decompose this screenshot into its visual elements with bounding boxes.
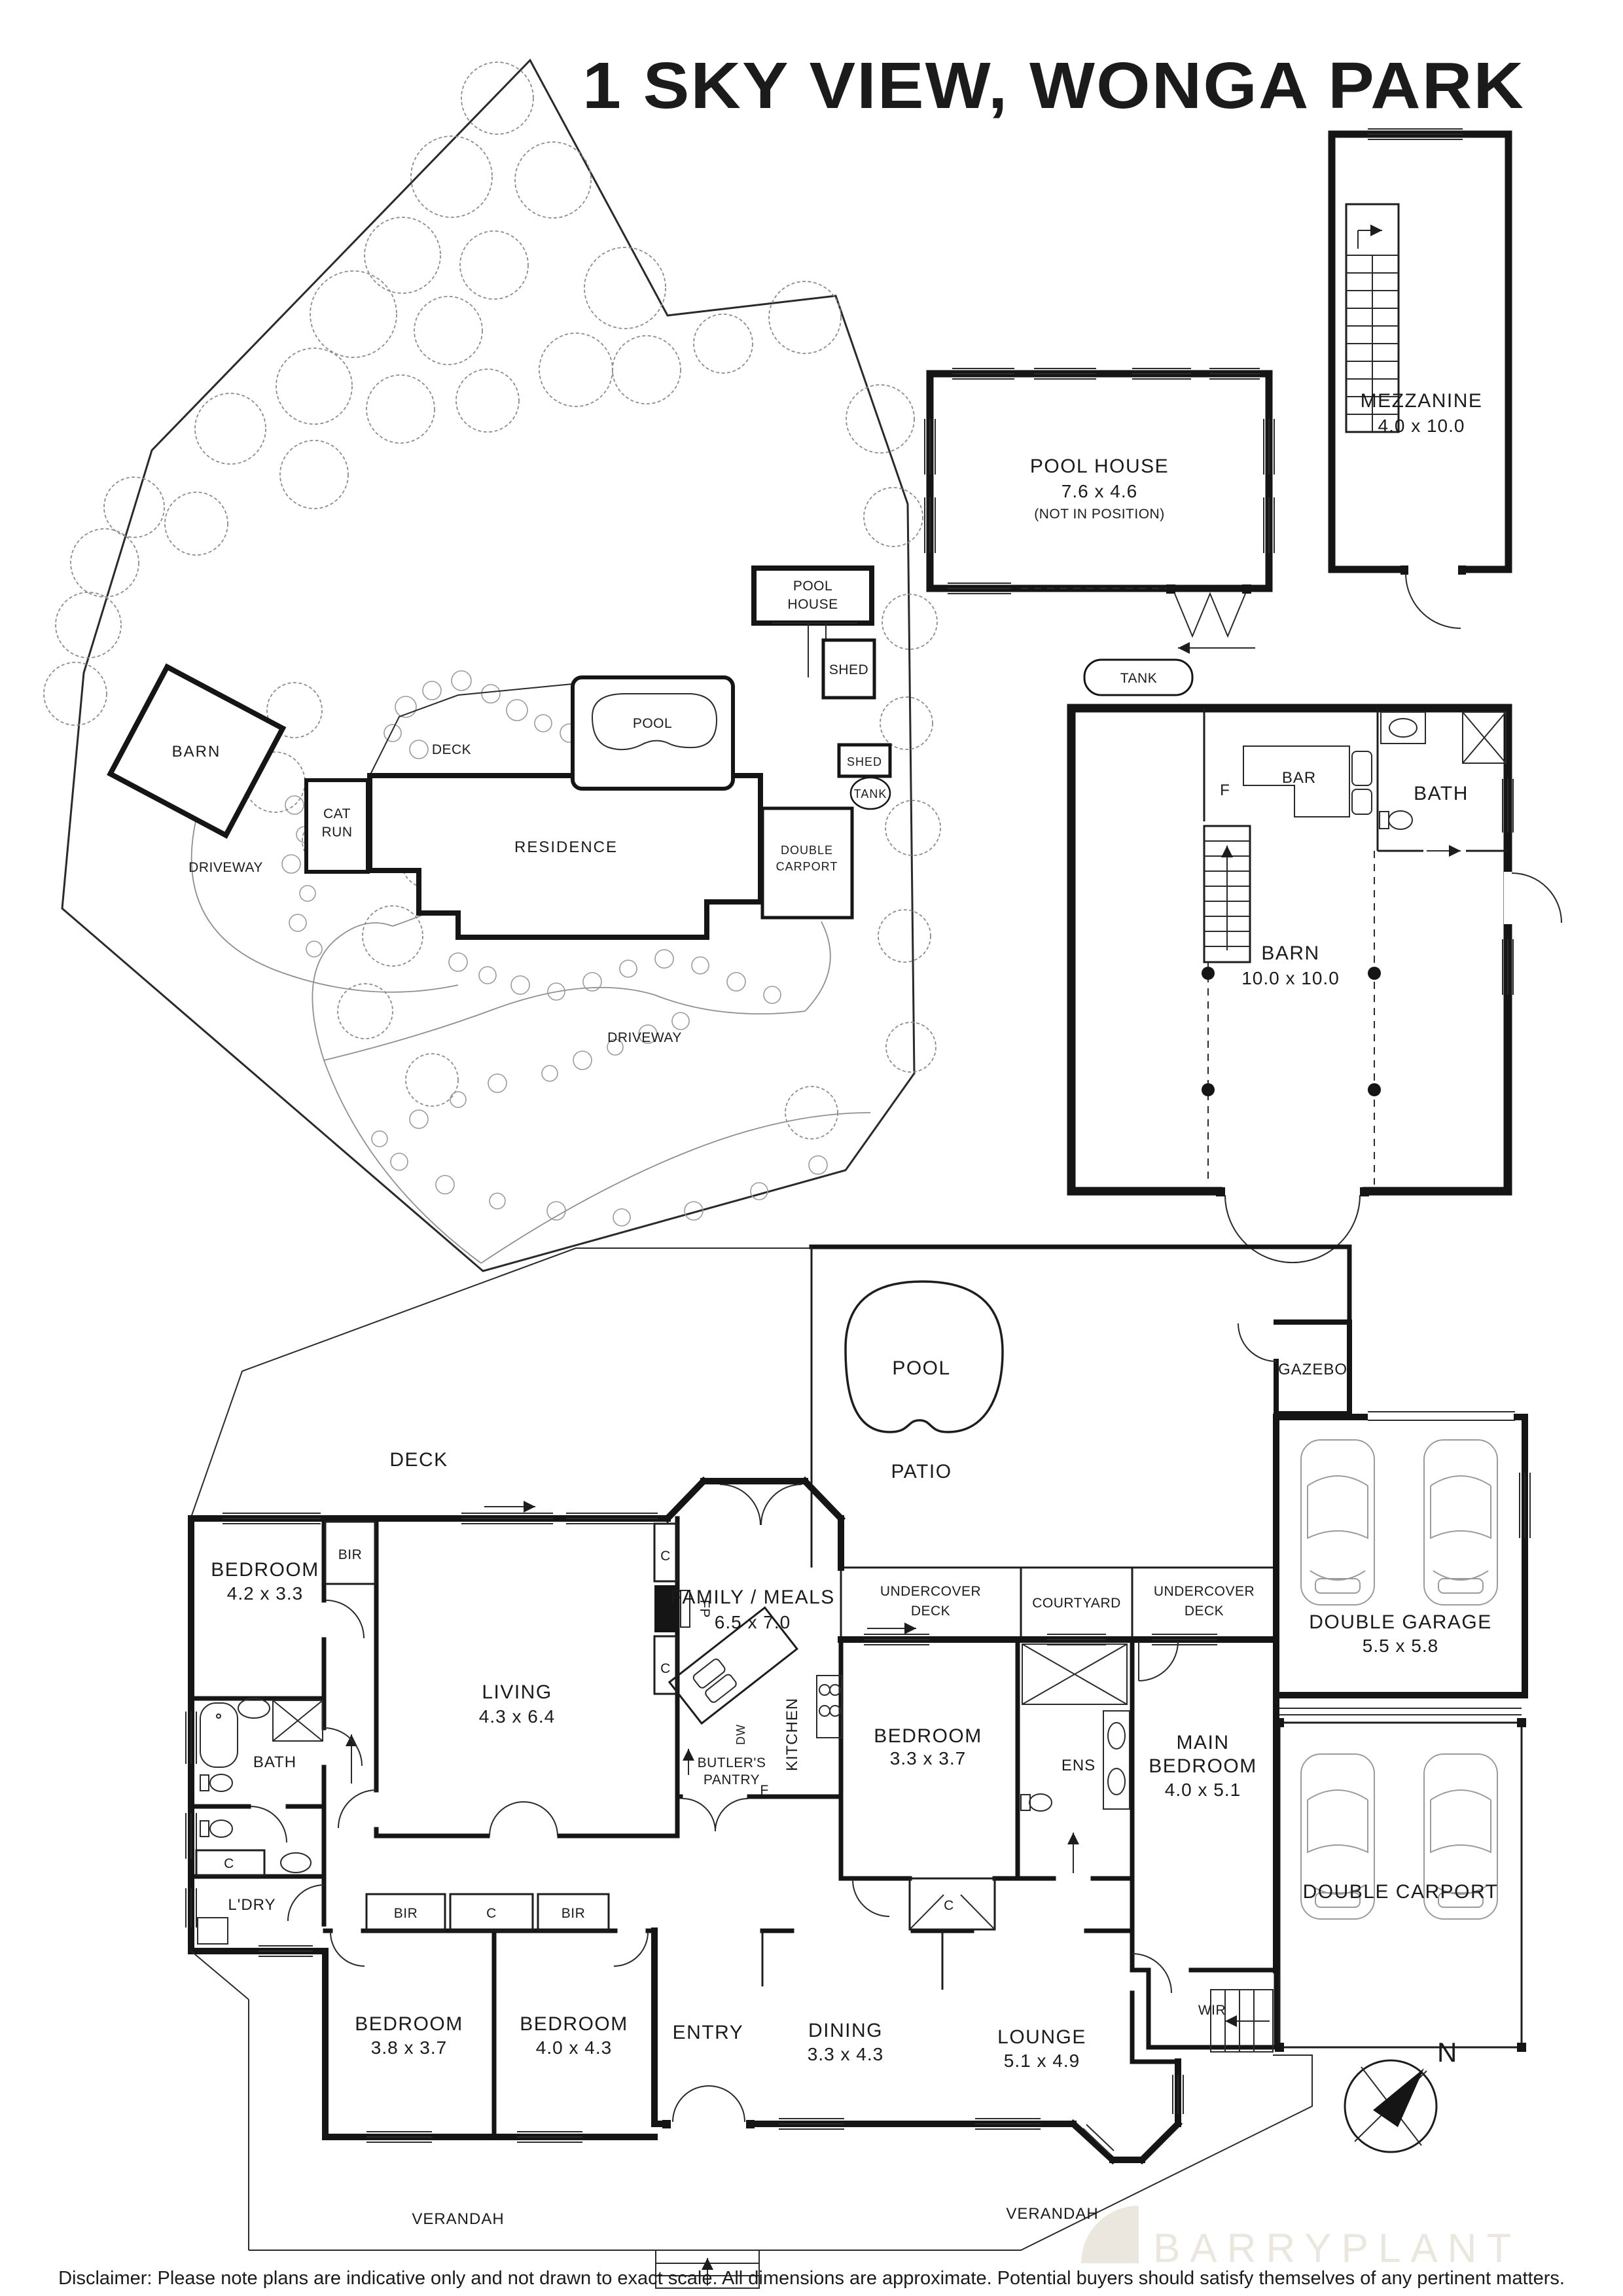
- label-bedroom5: BEDROOM: [520, 2013, 628, 2035]
- label-living-dims: 4.3 x 6.4: [479, 1706, 555, 1727]
- verandah-outline: [191, 1951, 1312, 2250]
- double-carport: DOUBLE CARPORT: [1275, 1708, 1526, 2052]
- toilet-tank: [200, 1775, 209, 1791]
- label-ldry: L'DRY: [228, 1896, 276, 1914]
- label-bedroom4-dims: 3.8 x 3.7: [371, 2037, 447, 2058]
- page-title: 1 SKY VIEW, WONGA PARK: [582, 49, 1525, 122]
- barn-double-door: [1225, 1195, 1360, 1263]
- pool-house-plan: POOL HOUSE 7.6 x 4.6 (NOT IN POSITION): [925, 368, 1274, 648]
- bay-double-doors: [720, 1484, 802, 1525]
- compass-needle-icon: [1373, 2068, 1424, 2127]
- label-ens: ENS: [1061, 1757, 1096, 1774]
- label-family: FAMILY / MEALS: [670, 1587, 835, 1608]
- label-garage: DOUBLE GARAGE: [1309, 1611, 1492, 1633]
- label-bir1: BIR: [338, 1547, 363, 1562]
- site-label-shed-1: SHED: [829, 662, 868, 677]
- living-double-doors: [490, 1802, 558, 1836]
- dining-stub-walls: [762, 1931, 942, 1990]
- side-stairs: [1211, 1990, 1273, 2052]
- label-main-bed-2: BEDROOM: [1149, 1755, 1257, 1777]
- label-verandah-right: VERANDAH: [1006, 2205, 1098, 2223]
- label-bath: BATH: [253, 1753, 296, 1771]
- label-bedroom3: BEDROOM: [874, 1725, 982, 1747]
- toilet-tank: [200, 1821, 209, 1837]
- label-c-bed3: C: [944, 1898, 954, 1913]
- toilet-tank: [1021, 1795, 1030, 1810]
- c-bed3-closet: C: [910, 1878, 995, 1929]
- disclaimer-text: Disclaimer: Please note plans are indica…: [58, 2268, 1565, 2289]
- label-carport: DOUBLE CARPORT: [1303, 1881, 1499, 1903]
- door-jamb: [1458, 565, 1466, 575]
- label-c-top: C: [660, 1549, 671, 1564]
- bedroom1-door: [326, 1600, 364, 1638]
- bay-window-walls: [668, 1481, 841, 1568]
- label-main-bed-3: 4.0 x 5.1: [1165, 1780, 1241, 1800]
- basin-icon: [281, 1853, 311, 1873]
- label-kitchen: KITCHEN: [783, 1698, 801, 1771]
- site-label-cat-run-1: CAT: [323, 806, 351, 821]
- label-bedroom1: BEDROOM: [211, 1559, 319, 1581]
- basin-icon: [1108, 1723, 1125, 1749]
- brand-name: BARRYPLANT: [1153, 2226, 1521, 2271]
- sink-icon: [692, 1658, 726, 1689]
- barn-plan: TANK F BAR BATH BARN 10.0 x 10.0: [1071, 660, 1561, 1263]
- site-label-driveway-1: DRIVEWAY: [188, 860, 263, 875]
- bath-door: [324, 1728, 362, 1766]
- site-label-tank: TANK: [854, 787, 887, 800]
- site-shrubs: [282, 671, 827, 1226]
- lounge-right-walls: [1132, 1931, 1178, 2062]
- label-ud2-1: UNDERCOVER: [1154, 1584, 1255, 1599]
- label-patio: PATIO: [891, 1461, 952, 1482]
- toilet-icon: [1029, 1794, 1052, 1811]
- pool-house-bifold-door: [1175, 594, 1245, 636]
- bath-door: [251, 1806, 287, 1842]
- site-label-pool-house-2: HOUSE: [787, 597, 838, 612]
- ensuite: ENS: [1021, 1644, 1130, 1873]
- site-plan: BARN DRIVEWAY DRIVEWAY CAT RUN DECK RESI…: [44, 60, 940, 1271]
- compass: N: [1345, 2037, 1457, 2152]
- living-hall-door: [338, 1790, 376, 1828]
- basin-icon: [1108, 1768, 1125, 1795]
- mezzanine-walls: [1332, 134, 1508, 569]
- mezzanine-door: [1406, 573, 1461, 628]
- cooktop-icon: [817, 1676, 842, 1738]
- label-ud2-2: DECK: [1185, 1604, 1224, 1619]
- label-verandah-left: VERANDAH: [412, 2210, 504, 2228]
- label-main-bed-1: MAIN: [1177, 1732, 1230, 1753]
- front-double-doors: [673, 2086, 745, 2122]
- label-living: LIVING: [482, 1681, 552, 1703]
- gazebo: GAZEBO: [1238, 1322, 1349, 1414]
- site-label-residence: RESIDENCE: [514, 838, 618, 856]
- main-floor-plan: POOL PATIO GAZEBO DOUBLE GARAGE 5.5 x 5.…: [186, 1247, 1530, 2288]
- door-jamb: [1400, 565, 1408, 575]
- floorplan-canvas: BARRYPLANT 1 SKY VIEW, WONGA PARK: [0, 0, 1623, 2296]
- door-jamb: [1166, 584, 1175, 594]
- butlers-pantry: BUTLER'S PANTRY: [683, 1749, 766, 1831]
- label-deck: DECK: [389, 1449, 448, 1471]
- family-double-doors: [683, 1799, 748, 1831]
- barn-bar-label: BAR: [1282, 769, 1316, 787]
- shower-icon: [1022, 1644, 1127, 1704]
- label-garage-dims: 5.5 x 5.8: [1363, 1636, 1438, 1656]
- label-bedroom4: BEDROOM: [355, 2013, 463, 2035]
- wall-right-wing: [841, 1640, 1276, 1970]
- site-label-barn: BARN: [172, 743, 221, 761]
- lounge-bay-walls: [1073, 2062, 1178, 2160]
- site-label-pool-house-1: POOL: [793, 579, 832, 594]
- barn-name: BARN: [1261, 942, 1319, 964]
- left-windows: [186, 1712, 196, 1928]
- bath-wc-walls: [191, 1806, 324, 1876]
- site-label-deck: DECK: [432, 742, 471, 757]
- label-dining-dims: 3.3 x 4.3: [808, 2044, 883, 2064]
- label-ud1-2: DECK: [911, 1604, 950, 1619]
- label-fridge: F: [760, 1783, 768, 1798]
- mezzanine-door-gap: [1404, 564, 1462, 575]
- wall-left: [191, 1518, 325, 2137]
- barn-tank-label: TANK: [1120, 671, 1157, 686]
- pool-house-name: POOL HOUSE: [1030, 456, 1169, 477]
- floorplan-page: BARRYPLANT 1 SKY VIEW, WONGA PARK: [0, 0, 1623, 2296]
- label-ud1-1: UNDERCOVER: [880, 1584, 981, 1599]
- shower-icon: [273, 1700, 323, 1741]
- label-lounge: LOUNGE: [997, 2026, 1086, 2048]
- site-label-carport-1: DOUBLE: [781, 844, 833, 857]
- bathtub-icon: [200, 1703, 238, 1767]
- label-butlers-1: BUTLER'S: [698, 1755, 766, 1770]
- barn-bath-label: BATH: [1414, 783, 1469, 804]
- label-courtyard: COURTYARD: [1032, 1596, 1121, 1611]
- barn-side-door: [1512, 873, 1561, 923]
- double-garage: DOUBLE GARAGE 5.5 x 5.8: [1276, 1412, 1530, 1695]
- mezzanine-name: MEZZANINE: [1361, 390, 1483, 412]
- label-dw: DW: [734, 1724, 747, 1745]
- site-label-driveway-2: DRIVEWAY: [607, 1030, 682, 1045]
- label-c-band: C: [486, 1906, 497, 1921]
- label-gazebo: GAZEBO: [1278, 1361, 1347, 1378]
- brand-watermark: BARRYPLANT: [1081, 2206, 1521, 2271]
- site-label-carport-2: CARPORT: [776, 860, 838, 873]
- label-wir: WIR: [1198, 2003, 1226, 2018]
- bedroom1-walls: [191, 1518, 324, 1698]
- toilet-icon: [210, 1774, 232, 1791]
- bathroom: BATH: [200, 1698, 323, 1842]
- bedroom5-door: [614, 1932, 648, 1966]
- label-family-dims: 6.5 x 7.0: [715, 1612, 791, 1632]
- mezzanine-dims: 4.0 x 10.0: [1378, 416, 1465, 436]
- laundry-door: [288, 1885, 324, 1921]
- label-bedroom1-dims: 4.2 x 3.3: [227, 1583, 303, 1604]
- label-dining: DINING: [808, 2020, 883, 2041]
- site-label-pool: POOL: [633, 716, 672, 731]
- mezzanine-plan: MEZZANINE 4.0 x 10.0: [1332, 129, 1508, 628]
- main-bed-door: [1139, 1641, 1178, 1681]
- property-boundary: [62, 60, 914, 1271]
- barn-fridge-label: F: [1220, 781, 1230, 799]
- site-label-cat-run-2: RUN: [322, 825, 353, 840]
- bedroom3-door: [853, 1880, 889, 1916]
- pool-house-dims: 7.6 x 4.6: [1061, 481, 1137, 501]
- bedroom4-door: [330, 1932, 365, 1966]
- label-lounge-dims: 5.1 x 4.9: [1004, 2051, 1080, 2071]
- pool-shape: [846, 1282, 1003, 1432]
- label-entry: ENTRY: [673, 2022, 744, 2043]
- label-c-hall: C: [224, 1856, 234, 1871]
- label-bir2: BIR: [394, 1906, 418, 1921]
- site-pool-house: [754, 568, 872, 623]
- washer-icon: [198, 1918, 228, 1944]
- label-bedroom3-dims: 3.3 x 3.7: [890, 1748, 966, 1768]
- label-c-mid: C: [660, 1661, 671, 1676]
- compass-north-label: N: [1437, 2037, 1457, 2068]
- hall-walls: [324, 1518, 376, 1924]
- label-bedroom5-dims: 4.0 x 4.3: [536, 2037, 612, 2058]
- living-walls: [376, 1518, 677, 1836]
- deck-outline: [191, 1248, 811, 1517]
- label-butlers-2: PANTRY: [704, 1772, 760, 1787]
- barn-dims: 10.0 x 10.0: [1241, 968, 1340, 988]
- door-jamb: [1242, 584, 1251, 594]
- pool-house-note: (NOT IN POSITION): [1034, 507, 1164, 522]
- basin-icon: [238, 1698, 270, 1718]
- label-pool: POOL: [892, 1357, 950, 1379]
- site-residence: [370, 776, 760, 937]
- label-bir3: BIR: [562, 1906, 586, 1921]
- site-label-shed-2: SHED: [847, 755, 882, 768]
- laundry: L'DRY: [198, 1885, 324, 1944]
- toilet-icon: [210, 1820, 232, 1837]
- lounge-side-door: [1132, 1954, 1171, 1993]
